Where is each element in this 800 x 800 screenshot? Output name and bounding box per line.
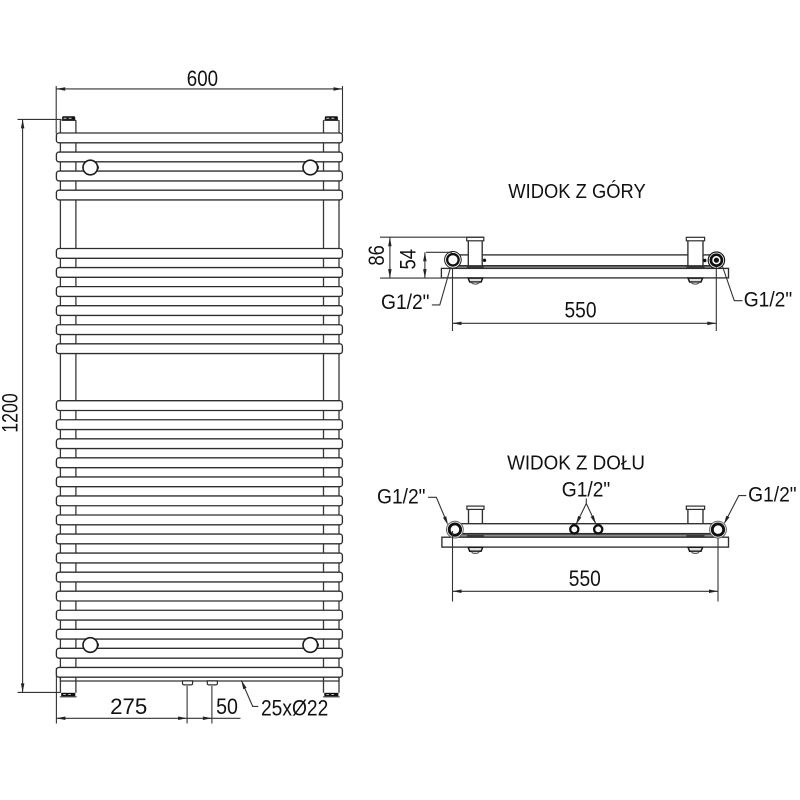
svg-text:G1/2": G1/2" [748,484,797,507]
svg-text:86: 86 [364,245,389,266]
svg-text:50: 50 [216,694,238,719]
svg-text:WIDOK Z DOŁU: WIDOK Z DOŁU [507,453,645,475]
svg-text:54: 54 [396,249,421,270]
svg-text:1200: 1200 [0,393,23,433]
svg-text:G1/2": G1/2" [381,291,430,314]
svg-text:G1/2": G1/2" [744,288,793,311]
svg-text:275: 275 [110,694,147,719]
svg-text:G1/2": G1/2" [377,485,426,508]
svg-text:600: 600 [187,66,218,91]
svg-text:550: 550 [565,298,597,323]
svg-text:25xØ22: 25xØ22 [261,696,328,721]
svg-text:G1/2": G1/2" [562,479,611,502]
svg-text:550: 550 [569,566,601,591]
svg-text:WIDOK Z GÓRY: WIDOK Z GÓRY [508,180,645,203]
